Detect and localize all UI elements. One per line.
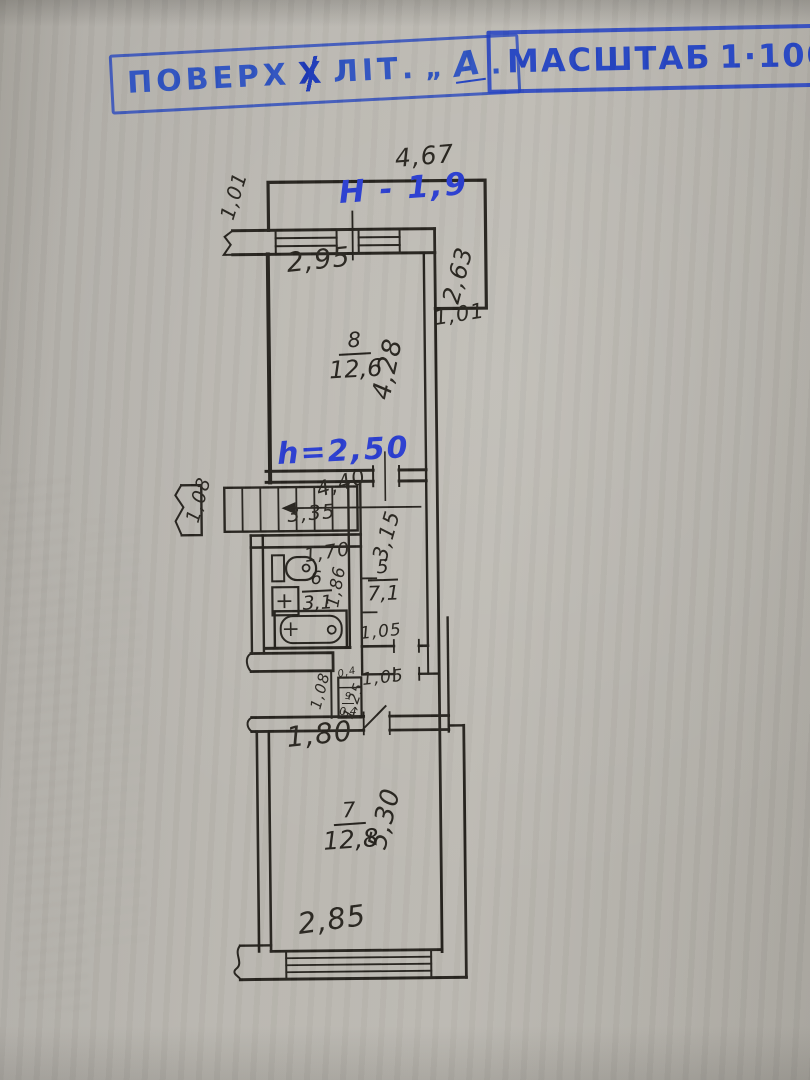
- scanned-floor-plan-page: ПОВЕРХХЛІТ. „ А ▪ МАСШТАБ 1·100 Н - 1,9 …: [0, 0, 810, 1080]
- floor-stamp-prefix: ПОВЕРХ: [126, 57, 291, 100]
- dim-balcony-width: 4,67: [394, 141, 456, 171]
- dim-door-a: 1,05: [359, 622, 402, 643]
- room-7-label: 7 12,8: [320, 798, 379, 854]
- wall-break-mark: [175, 485, 184, 535]
- room-9-number: 9: [342, 692, 354, 704]
- dim-room8-window: 2,95: [285, 243, 352, 277]
- wall-break-mark: [224, 231, 233, 255]
- room-6-area: 3,1: [299, 591, 336, 614]
- room-6-number: 6: [301, 569, 332, 593]
- wall-break-mark: [247, 654, 251, 672]
- dimension-tick: [352, 211, 353, 259]
- room-8-number: 8: [338, 329, 371, 356]
- floor-stamp-quote: „: [424, 53, 447, 84]
- room-8-label: 8 12,6: [327, 329, 384, 383]
- wall-break-mark: [234, 946, 240, 980]
- floor-stamp-letter: А: [452, 47, 487, 83]
- wall-break-mark: [247, 718, 251, 732]
- room-9-area: 0,4: [337, 704, 359, 717]
- floor-stamp-crossed-letter: Х: [297, 55, 326, 91]
- dim-stairs-run: 3,35: [286, 501, 336, 525]
- scale-stamp: МАСШТАБ 1·100: [486, 23, 810, 94]
- scale-stamp-label: МАСШТАБ: [507, 38, 712, 80]
- room-8-area: 12,6: [328, 354, 383, 383]
- scale-stamp-value: 1·100: [719, 36, 810, 76]
- room-6-label: 6 3,1: [298, 569, 336, 614]
- corridor-walls: [348, 481, 464, 732]
- room-9-label: 9 0,4: [337, 686, 359, 717]
- room-7-number: 7: [333, 799, 366, 826]
- dim-hall-width: 1,80: [285, 717, 354, 752]
- balcony-height-note: Н - 1,9: [338, 169, 469, 209]
- entry-door-swing: [364, 706, 386, 728]
- room-5-area: 7,1: [364, 580, 403, 603]
- room-5-label: 5 7,1: [363, 557, 403, 603]
- room-7-area: 12,8: [322, 823, 380, 854]
- floor-stamp-suffix: ЛІТ.: [332, 51, 418, 90]
- ceiling-height-note: h=2,50: [276, 433, 410, 470]
- room7-window: [286, 950, 431, 980]
- room-5-number: 5: [367, 557, 398, 581]
